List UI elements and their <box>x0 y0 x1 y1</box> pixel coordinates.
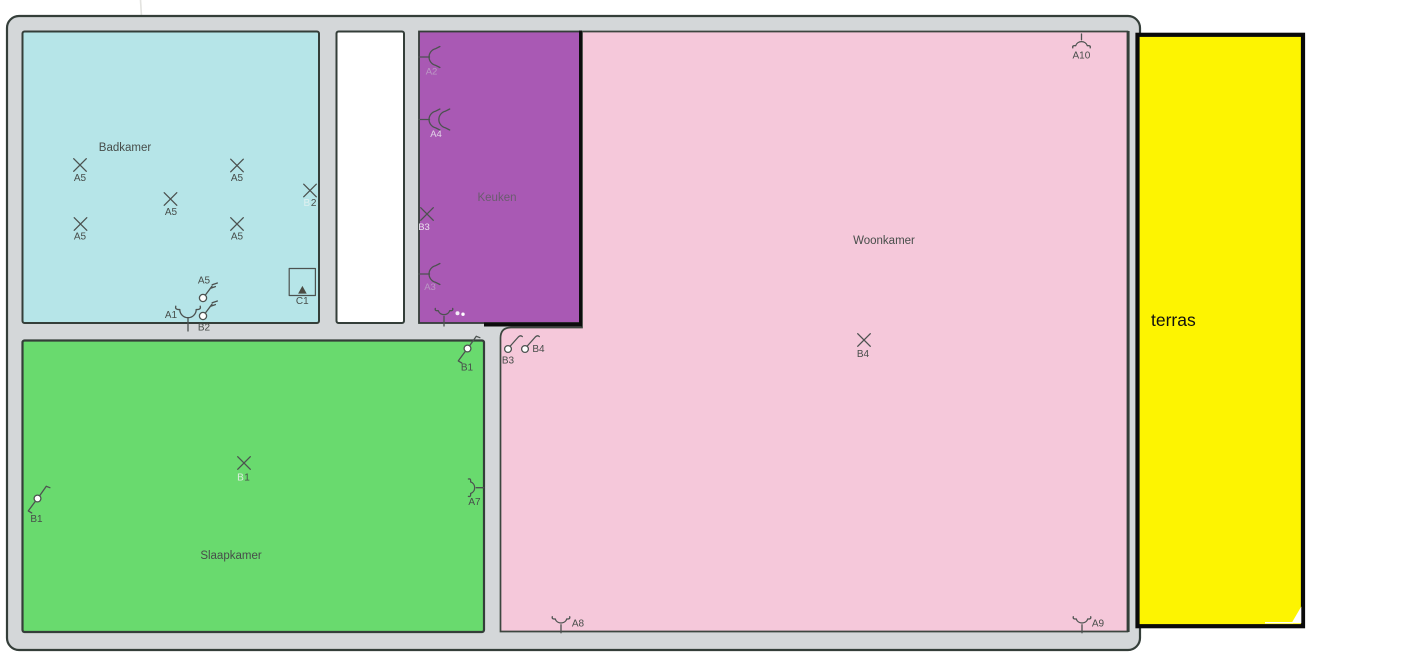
svg-text:B2: B2 <box>198 323 211 334</box>
svg-text:1: 1 <box>244 473 250 484</box>
svg-text:A5: A5 <box>74 232 87 243</box>
svg-text:A10: A10 <box>1073 51 1091 62</box>
svg-text:A9: A9 <box>1092 618 1105 629</box>
svg-text:B: B <box>237 473 244 484</box>
svg-text:A5: A5 <box>74 173 87 184</box>
svg-text:Woonkamer: Woonkamer <box>853 235 915 247</box>
svg-text:Keuken: Keuken <box>477 192 516 204</box>
svg-text:A2: A2 <box>426 67 438 78</box>
svg-text:B: B <box>303 198 310 209</box>
svg-text:A3: A3 <box>424 282 436 293</box>
svg-text:B1: B1 <box>461 363 474 374</box>
svg-text:A1: A1 <box>165 310 178 321</box>
svg-text:Badkamer: Badkamer <box>99 142 152 154</box>
svg-text:C1: C1 <box>296 296 309 307</box>
svg-text:B4: B4 <box>532 344 545 355</box>
svg-text:A4: A4 <box>430 129 442 140</box>
svg-text:B3: B3 <box>502 356 515 367</box>
svg-text:B4: B4 <box>857 349 870 360</box>
svg-text:A5: A5 <box>231 232 244 243</box>
svg-text:terras: terras <box>1151 310 1196 330</box>
svg-text:B3: B3 <box>418 222 430 233</box>
svg-text:A7: A7 <box>468 497 481 508</box>
svg-text:Slaapkamer: Slaapkamer <box>200 550 262 562</box>
svg-text:A8: A8 <box>572 619 585 630</box>
svg-text:A5: A5 <box>198 276 211 287</box>
svg-text:2: 2 <box>311 198 317 209</box>
svg-text:A5: A5 <box>165 207 178 218</box>
svg-text:B1: B1 <box>30 514 43 525</box>
svg-text:A5: A5 <box>231 173 244 184</box>
